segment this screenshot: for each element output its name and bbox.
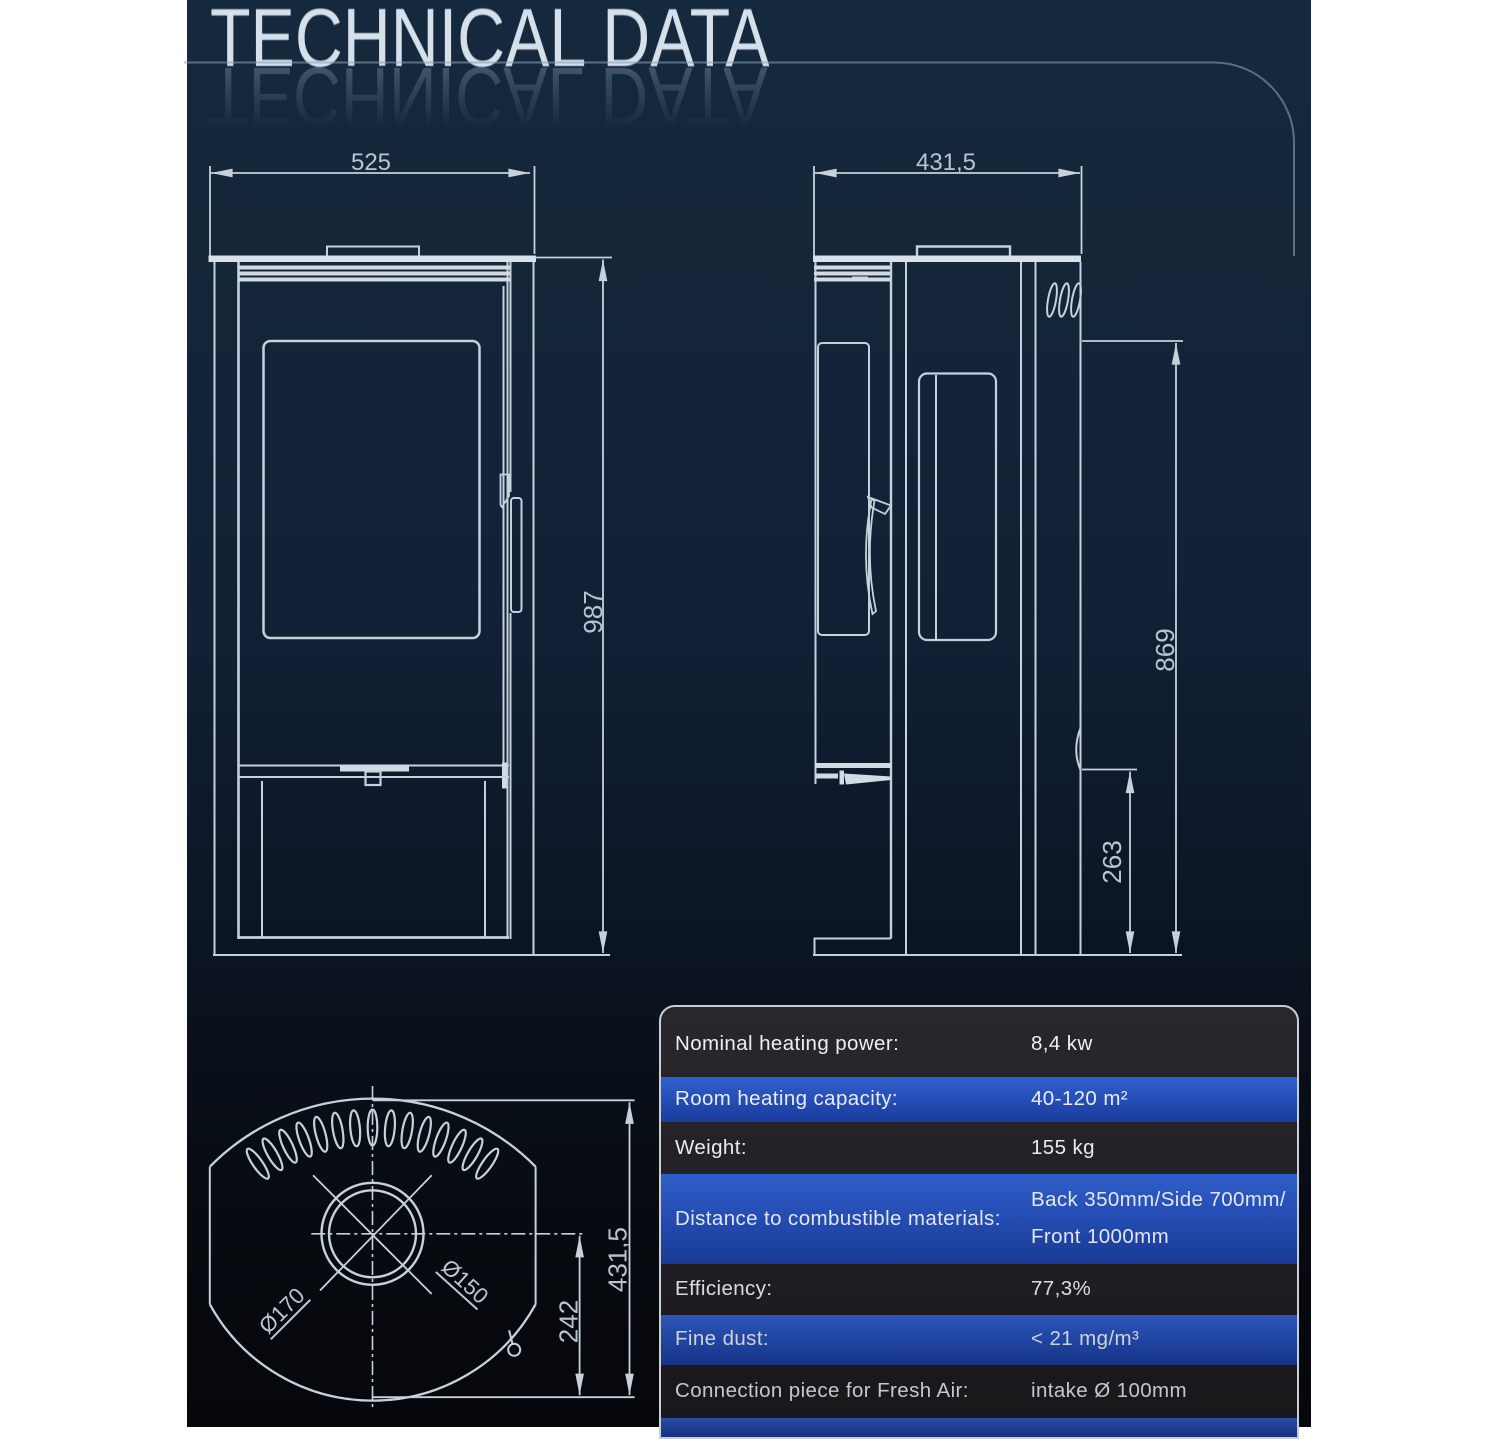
svg-text:242: 242 bbox=[554, 1300, 584, 1343]
svg-text:431,5: 431,5 bbox=[916, 149, 976, 176]
svg-text:431,5: 431,5 bbox=[603, 1227, 633, 1292]
svg-text:Ø170: Ø170 bbox=[254, 1283, 310, 1339]
svg-text:263: 263 bbox=[1097, 840, 1127, 883]
svg-text:869: 869 bbox=[1150, 628, 1180, 671]
svg-text:525: 525 bbox=[351, 149, 391, 176]
svg-text:987: 987 bbox=[578, 590, 608, 633]
